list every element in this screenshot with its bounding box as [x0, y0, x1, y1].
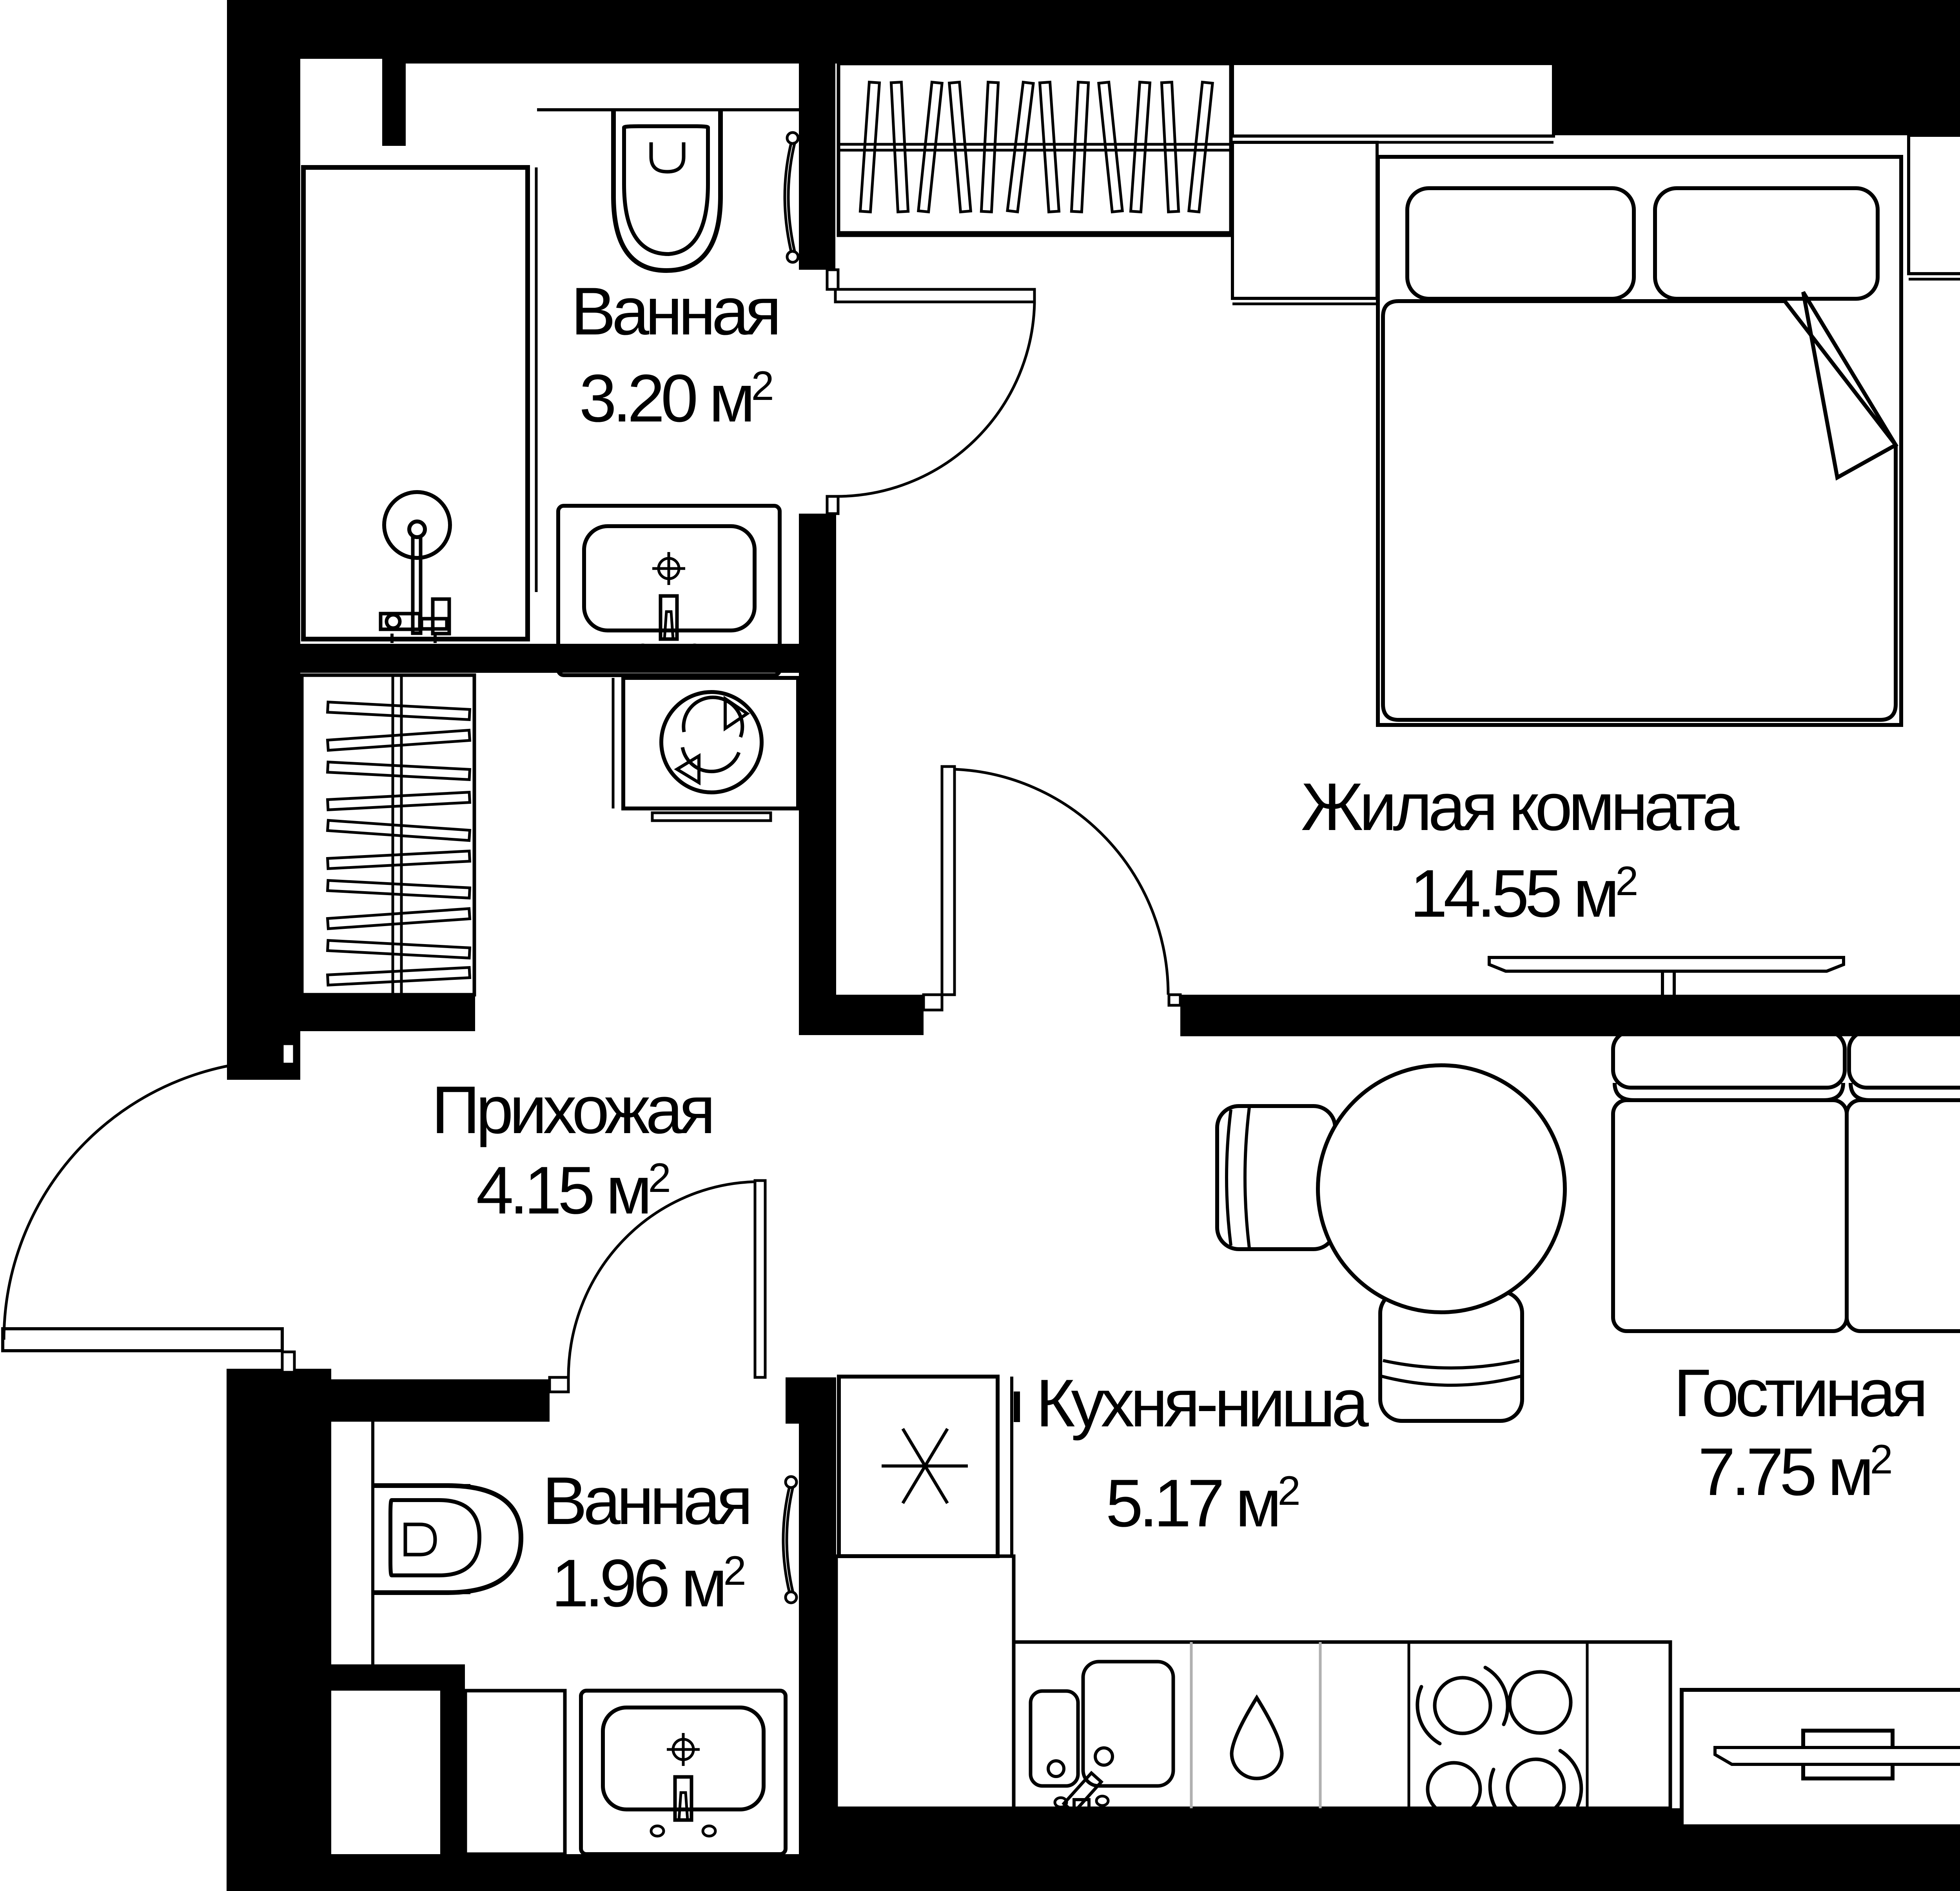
- svg-text:Ванная: Ванная: [571, 274, 777, 349]
- svg-text:Прихожая: Прихожая: [432, 1072, 711, 1148]
- svg-text:Кухня-ниша: Кухня-ниша: [1036, 1366, 1369, 1441]
- svg-text:Ванная: Ванная: [542, 1463, 749, 1539]
- svg-text:4.15 м2: 4.15 м2: [476, 1153, 670, 1228]
- svg-text:Жилая комната: Жилая комната: [1301, 769, 1740, 845]
- svg-text:7.75 м2: 7.75 м2: [1698, 1434, 1891, 1510]
- svg-text:14.55 м2: 14.55 м2: [1410, 856, 1637, 931]
- svg-text:Гостиная: Гостиная: [1673, 1355, 1924, 1431]
- svg-text:3.20 м2: 3.20 м2: [579, 361, 773, 436]
- svg-text:5.17 м2: 5.17 м2: [1106, 1466, 1299, 1541]
- svg-text:1.96 м2: 1.96 м2: [552, 1546, 745, 1621]
